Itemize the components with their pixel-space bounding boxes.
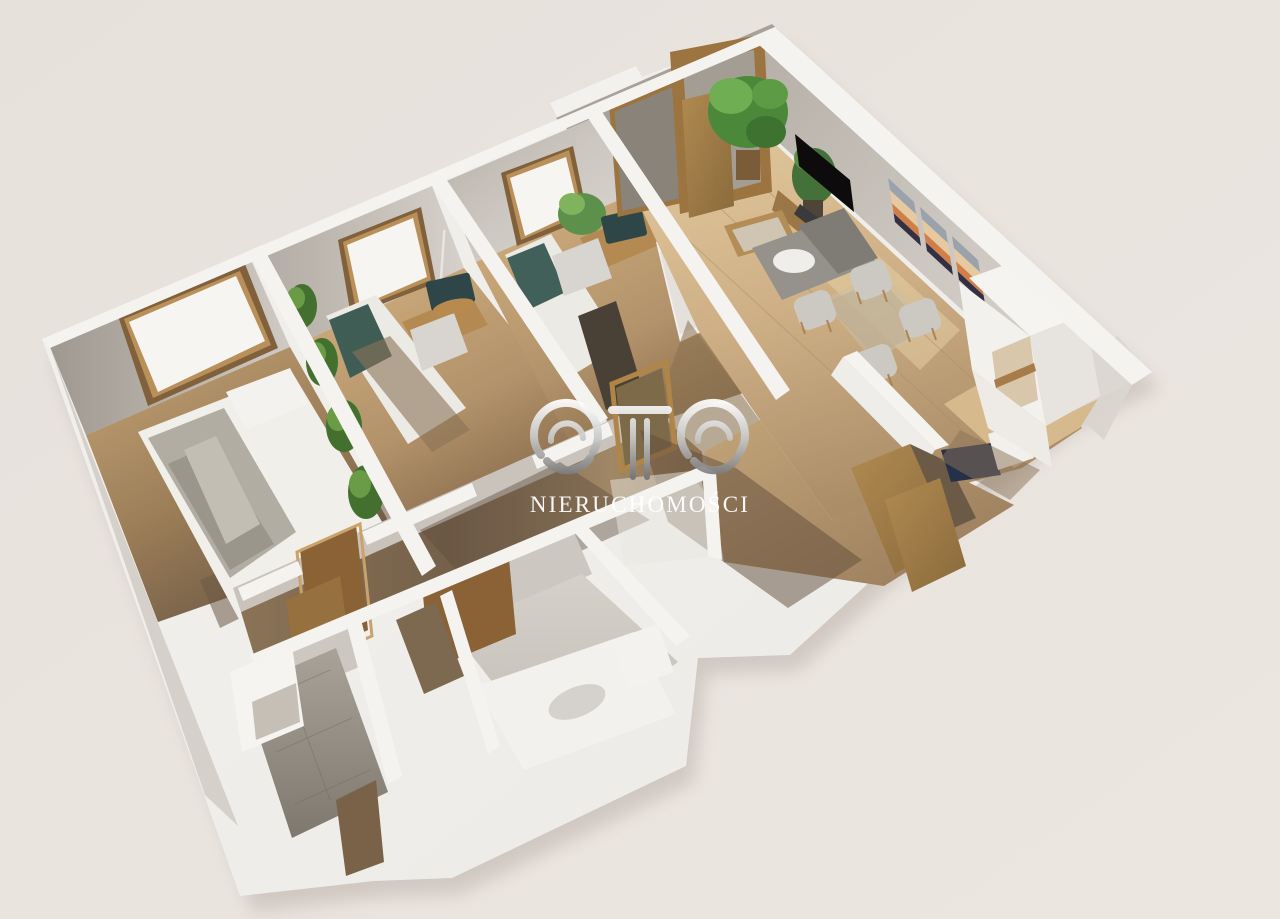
svg-text:NIERUCHOMOŚCI: NIERUCHOMOŚCI <box>530 491 750 517</box>
